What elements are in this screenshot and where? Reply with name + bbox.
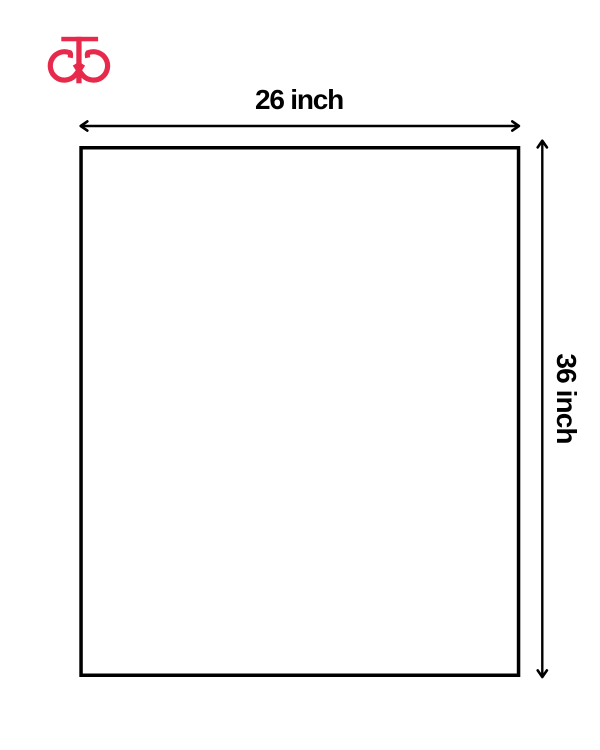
svg-text:36 inch: 36 inch <box>551 353 582 443</box>
svg-text:26 inch: 26 inch <box>255 84 343 115</box>
